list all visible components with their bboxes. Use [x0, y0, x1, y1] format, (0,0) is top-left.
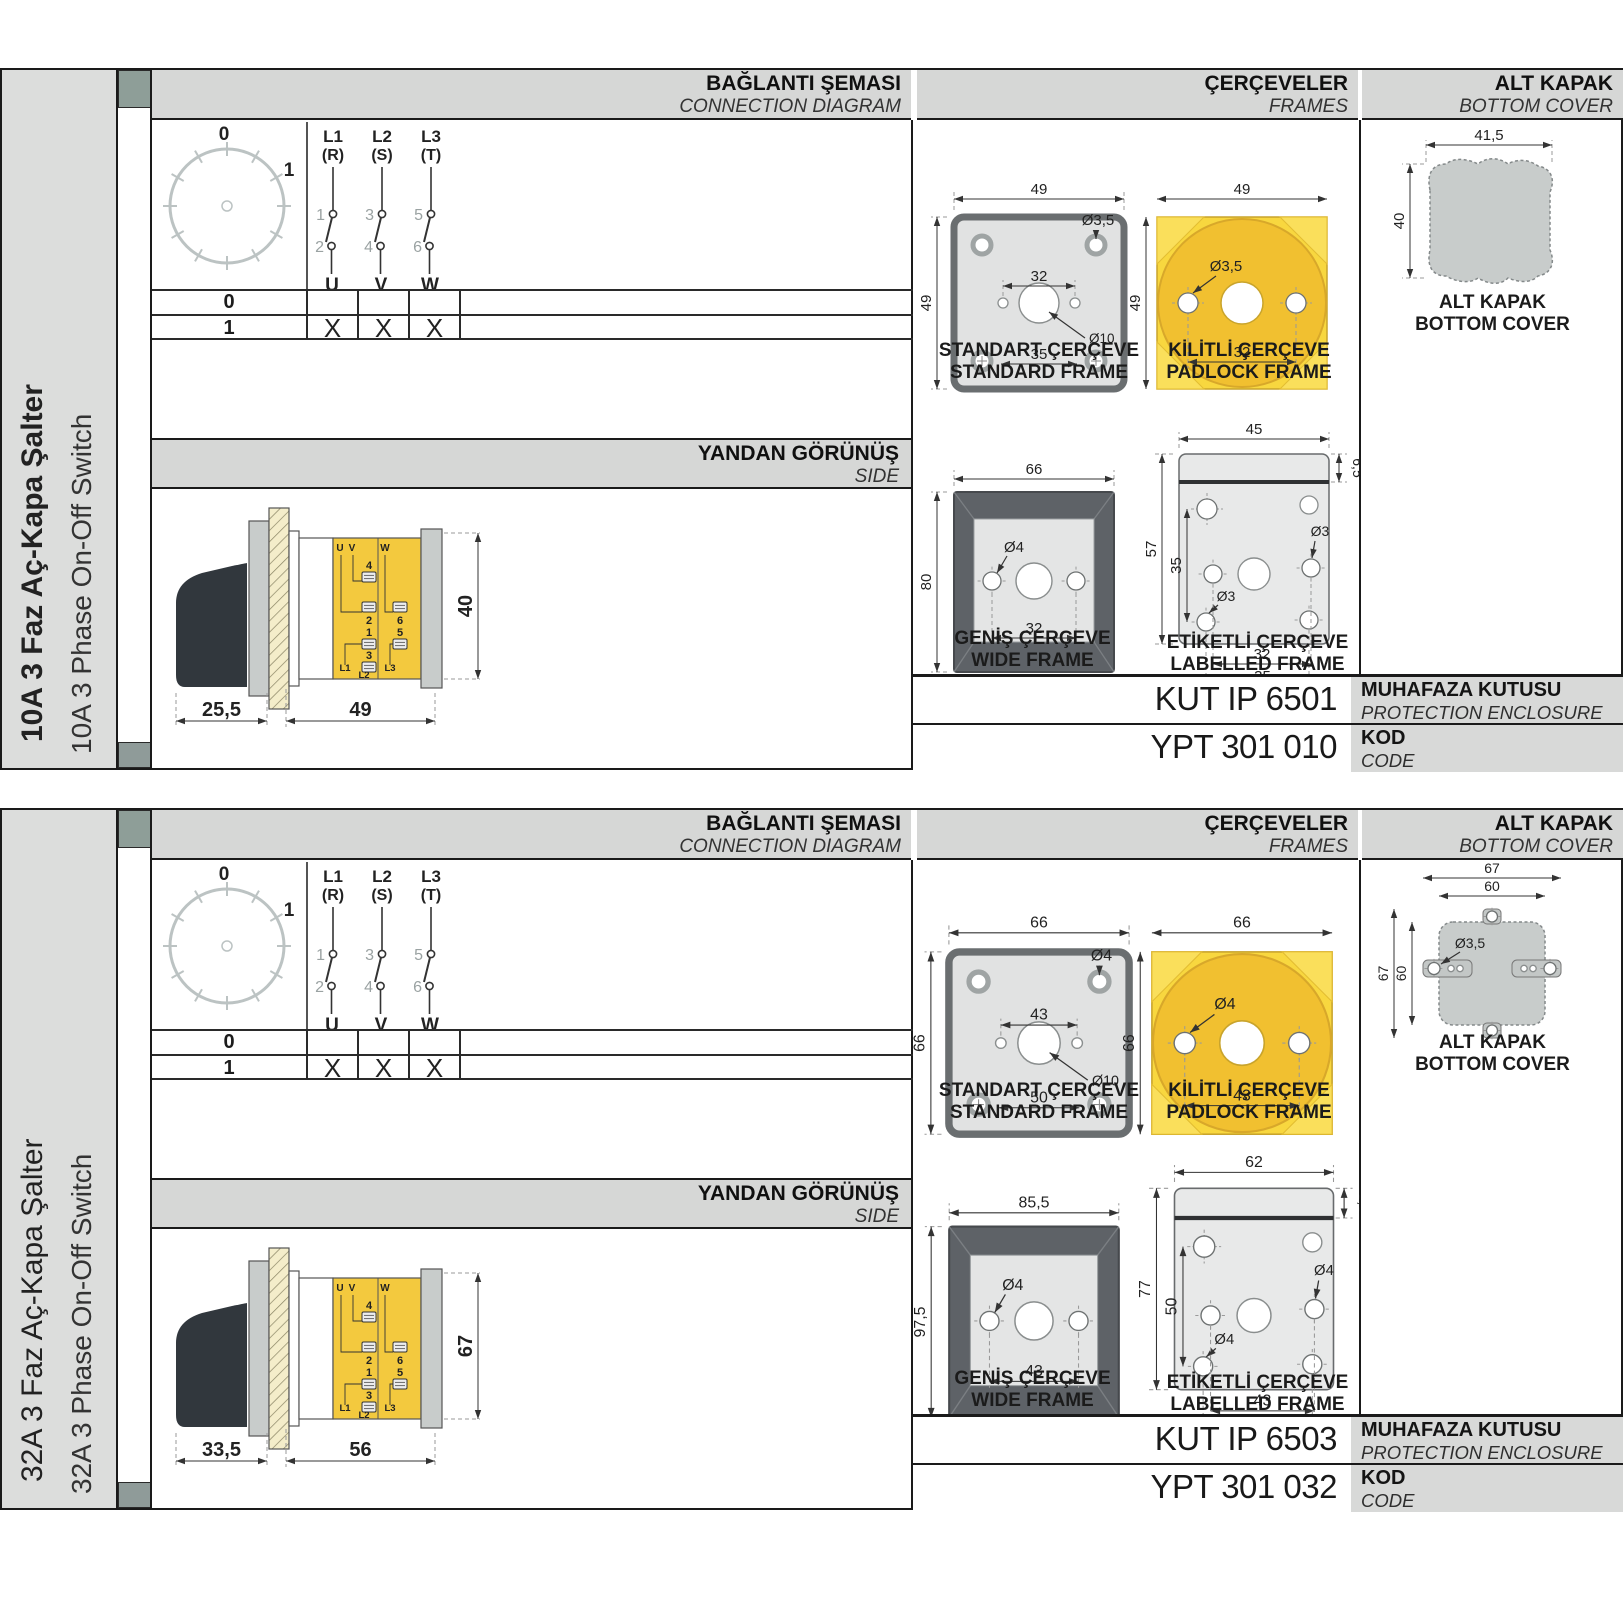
product-title-tr: 10A 3 Faz Aç-Kapa Şalter: [16, 384, 50, 742]
contact-mark: [359, 291, 410, 314]
dim-label: 32: [1031, 268, 1048, 285]
dim-label: 66: [1030, 915, 1048, 932]
terminal-number: 4: [366, 560, 373, 572]
phase-line-label: L1: [323, 867, 343, 886]
caption-wide-frame: GENİŞ ÇERÇEVE WIDE FRAME: [915, 628, 1150, 671]
contact-mark: X: [359, 1056, 410, 1080]
enclosure-row: KUT IP 6501 MUHAFAZA KUTUSU PROTECTION E…: [913, 677, 1623, 725]
caption-labelled-frame: ETİKETLİ ÇERÇEVE LABELLED FRAME: [1140, 632, 1375, 675]
dim-label: 97,5: [913, 1306, 929, 1337]
hole-dia-label: Ø4: [1214, 996, 1235, 1013]
phase-label: (R): [322, 887, 344, 904]
connection-diagram-drawing: 01L1(R)12UL2(S)34VL3(T)56W: [152, 862, 911, 1029]
dim-label: 67: [1484, 862, 1500, 876]
caption-bottom-cover: ALT KAPAK BOTTOM COVER: [1362, 292, 1623, 335]
registration-tab-top: [118, 70, 151, 108]
dim-label: 60: [1393, 966, 1409, 982]
order-code: YPT 301 032: [913, 1465, 1351, 1512]
table-row: 1 X X X: [152, 314, 913, 340]
contact-number: 4: [364, 239, 373, 256]
contact-mark: X: [410, 316, 461, 340]
terminal-number: 3: [366, 650, 372, 662]
header-frames: ÇERÇEVELER FRAMES: [917, 70, 1358, 120]
phase-label: (R): [322, 147, 344, 164]
phase-label: (S): [371, 887, 392, 904]
dim-label: 35: [1168, 557, 1185, 574]
dial-position-0: 0: [219, 864, 230, 885]
hole-dia-label: Ø3,5: [1082, 212, 1115, 229]
dim-label: 66: [1233, 915, 1251, 932]
rotary-dial: 01: [163, 864, 295, 1010]
caption-wide-frame: GENİŞ ÇERÇEVE WIDE FRAME: [915, 1368, 1150, 1411]
contact-number: 3: [365, 207, 374, 224]
codes-table: KUT IP 6503 MUHAFAZA KUTUSU PROTECTION E…: [913, 1414, 1623, 1512]
code-row: YPT 301 032 KOD CODE: [913, 1465, 1623, 1512]
enclosure-label: MUHAFAZA KUTUSU PROTECTION ENCLOSURE: [1351, 677, 1623, 723]
load-label: V: [375, 275, 388, 289]
side-view-drawing: UVW421365L1L2L333,55667: [152, 1229, 911, 1508]
phase-switch: L2(S)34V: [364, 867, 393, 1029]
header-connection-diagram: BAĞLANTI ŞEMASI CONNECTION DIAGRAM: [152, 810, 911, 860]
hole-dia-label: Ø3: [1311, 523, 1330, 539]
header-bottom-cover: ALT KAPAK BOTTOM COVER: [1362, 810, 1623, 860]
contact-mark: X: [359, 316, 410, 340]
dim-label: 56: [349, 1439, 371, 1461]
phase-line-label: L3: [421, 867, 441, 886]
dim-label: 85,5: [1019, 1195, 1050, 1212]
contact-number: 3: [365, 947, 374, 964]
terminal-label: V: [349, 543, 356, 554]
product-title-en: 32A 3 Phase On-Off Switch: [66, 1154, 98, 1494]
phase-label: (S): [371, 147, 392, 164]
dim-label: 60: [1484, 878, 1500, 894]
hole-dia-label: Ø4: [1214, 1332, 1234, 1348]
caption-standard-frame: STANDART ÇERÇEVE STANDARD FRAME: [924, 1080, 1154, 1123]
header-side-view: YANDAN GÖRÜNÜŞ SIDE: [152, 438, 911, 489]
contact-mark: [308, 291, 359, 314]
phase-label: (T): [421, 147, 441, 164]
load-label: U: [325, 1015, 339, 1029]
bottom-cover-shape: 41,540: [1391, 127, 1552, 283]
contact-number: 1: [316, 947, 325, 964]
row-position: 0: [152, 291, 308, 314]
side-view-drawing: UVW421365L1L2L325,54940: [152, 489, 911, 768]
hole-dia-label: Ø3,5: [1210, 258, 1243, 275]
load-label: V: [375, 1015, 388, 1029]
enclosure-code: KUT IP 6501: [913, 677, 1351, 723]
hole-dia-label: Ø4: [1002, 1277, 1023, 1294]
switching-table: 0 1 X X X: [152, 289, 913, 340]
phase-switch: L1(R)12U: [315, 127, 344, 289]
connection-diagram-drawing: 01L1(R)12UL2(S)34VL3(T)56W: [152, 122, 911, 289]
caption-standard-frame: STANDART ÇERÇEVE STANDARD FRAME: [924, 340, 1154, 383]
frames-drawings: Ø1049Ø3,5493235Ø3,5494932Ø4668032Ø3Ø3456…: [913, 122, 1360, 674]
dim-label: 33,5: [202, 1439, 241, 1461]
registration-tab-top: [118, 810, 151, 848]
terminal-label: V: [349, 1283, 356, 1294]
contact-number: 4: [364, 979, 373, 996]
catalog-page: { "page": {"background": "#ffffff"}, "co…: [0, 0, 1623, 1623]
connection-diagram: 01L1(R)12UL2(S)34VL3(T)56W: [163, 862, 441, 1029]
phase-switch: L1(R)12U: [315, 867, 344, 1029]
dim-label: 9,5: [1355, 1193, 1360, 1214]
product-block-10a: 10A 3 Faz Aç-Kapa Şalter 10A 3 Phase On-…: [0, 68, 1623, 770]
dim-label: 25,5: [202, 699, 241, 721]
phase-switch: L3(T)56W: [413, 127, 441, 289]
terminal-number: 6: [397, 615, 403, 627]
phase-line-label: L2: [372, 127, 392, 146]
caption-padlock-frame: KİLİTLİ ÇERÇEVE PADLOCK FRAME: [1134, 1080, 1364, 1123]
hole-dia-label: Ø4: [1314, 1263, 1334, 1279]
terminal-number: 2: [366, 1355, 372, 1367]
dial-position-0: 0: [219, 124, 230, 145]
phase-line-label: L1: [323, 127, 343, 146]
terminal-number: 1: [366, 627, 372, 639]
hole-dia-label: Ø3: [1217, 588, 1236, 604]
terminal-number: 2: [366, 615, 372, 627]
contact-mark: X: [410, 1056, 461, 1080]
switch-side-view: UVW421365L1L2L325,54940: [176, 508, 481, 727]
terminal-label: W: [380, 543, 390, 554]
contact-number: 5: [414, 207, 423, 224]
dim-label: 49: [1234, 181, 1251, 198]
header-side-view: YANDAN GÖRÜNÜŞ SIDE: [152, 1178, 911, 1229]
contact-number: 2: [315, 979, 324, 996]
contact-number: 2: [315, 239, 324, 256]
registration-tab-bottom: [118, 1482, 151, 1508]
header-bottom-cover: ALT KAPAK BOTTOM COVER: [1362, 70, 1623, 120]
caption-bottom-cover: ALT KAPAK BOTTOM COVER: [1362, 1032, 1623, 1075]
hole-dia-label: Ø4: [1091, 947, 1112, 964]
load-label: W: [421, 275, 439, 289]
registration-tab-bottom: [118, 742, 151, 768]
dim-label: 66: [1026, 461, 1043, 478]
caption-padlock-frame: KİLİTLİ ÇERÇEVE PADLOCK FRAME: [1134, 340, 1364, 383]
dial-position-1: 1: [284, 900, 295, 921]
dim-label: 41,5: [1474, 127, 1503, 144]
dim-label: 49: [349, 699, 371, 721]
load-label: U: [325, 275, 339, 289]
terminal-number: 5: [397, 627, 403, 639]
dim-label: 40: [455, 595, 477, 617]
hole-dia-label: Ø3,5: [1455, 935, 1486, 951]
dim-label: 45: [1246, 421, 1263, 438]
contact-mark: X: [308, 1056, 359, 1080]
enclosure-row: KUT IP 6503 MUHAFAZA KUTUSU PROTECTION E…: [913, 1417, 1623, 1465]
dim-label: 80: [918, 574, 935, 591]
contact-mark: [359, 1031, 410, 1054]
dim-label: 57: [1143, 541, 1160, 558]
dim-label: 6,5: [1350, 458, 1360, 478]
table-row: 0: [152, 289, 913, 314]
header-frames: ÇERÇEVELER FRAMES: [917, 810, 1358, 860]
terminal-label: W: [380, 1283, 390, 1294]
terminal-label: L2: [358, 1410, 369, 1421]
row-position: 1: [152, 1056, 308, 1080]
contact-number: 1: [316, 207, 325, 224]
dim-label: 50: [1164, 1297, 1181, 1315]
dial-position-1: 1: [284, 160, 295, 181]
dim-label: 49: [918, 295, 935, 312]
terminal-number: 6: [397, 1355, 403, 1367]
contact-mark: [308, 1031, 359, 1054]
code-label: KOD CODE: [1351, 1465, 1623, 1512]
product-sidebar: 10A 3 Faz Aç-Kapa Şalter 10A 3 Phase On-…: [2, 70, 118, 768]
dim-label: 49: [1031, 181, 1048, 198]
contact-number: 6: [413, 979, 422, 996]
contact-mark: [410, 291, 461, 314]
enclosure-code: KUT IP 6503: [913, 1417, 1351, 1463]
table-row: 1 X X X: [152, 1054, 913, 1080]
header-connection-diagram: BAĞLANTI ŞEMASI CONNECTION DIAGRAM: [152, 70, 911, 120]
dim-label: 66: [913, 1034, 929, 1052]
dim-label: 43: [1030, 1007, 1048, 1024]
contact-number: 5: [414, 947, 423, 964]
order-code: YPT 301 010: [913, 725, 1351, 772]
frames-drawings: Ø1066Ø4664350Ø4666643Ø485,597,543Ø4Ø4629…: [913, 862, 1360, 1414]
terminal-label: L2: [358, 670, 369, 681]
code-row: YPT 301 010 KOD CODE: [913, 725, 1623, 772]
phase-switch: L3(T)56W: [413, 867, 441, 1029]
product-sidebar: 32A 3 Faz Aç-Kapa Şalter 32A 3 Phase On-…: [2, 810, 118, 1508]
switch-side-view: UVW421365L1L2L333,55667: [176, 1248, 481, 1467]
dim-label: 67: [455, 1335, 477, 1357]
enclosure-label: MUHAFAZA KUTUSU PROTECTION ENCLOSURE: [1351, 1417, 1623, 1463]
contact-mark: [410, 1031, 461, 1054]
dim-label: 49: [1127, 295, 1144, 312]
terminal-number: 3: [366, 1390, 372, 1402]
rotary-dial: 01: [163, 124, 295, 270]
dim-label: 77: [1137, 1280, 1154, 1298]
switching-table: 0 1 X X X: [152, 1029, 913, 1080]
terminal-label: U: [336, 543, 343, 554]
contact-mark: X: [308, 316, 359, 340]
codes-table: KUT IP 6501 MUHAFAZA KUTUSU PROTECTION E…: [913, 674, 1623, 772]
load-label: W: [421, 1015, 439, 1029]
terminal-label: U: [336, 1283, 343, 1294]
table-row: 0: [152, 1029, 913, 1054]
caption-labelled-frame: ETİKETLİ ÇERÇEVE LABELLED FRAME: [1140, 1372, 1375, 1415]
product-title-tr: 32A 3 Faz Aç-Kapa Şalter: [16, 1138, 50, 1482]
dim-label: 62: [1245, 1154, 1263, 1171]
dim-label: 66: [1121, 1034, 1138, 1052]
product-block-32a: 32A 3 Faz Aç-Kapa Şalter 32A 3 Phase On-…: [0, 808, 1623, 1510]
product-title-en: 10A 3 Phase On-Off Switch: [66, 414, 98, 754]
code-label: KOD CODE: [1351, 725, 1623, 772]
phase-line-label: L3: [421, 127, 441, 146]
phase-label: (T): [421, 887, 441, 904]
terminal-number: 4: [366, 1300, 373, 1312]
hole-dia-label: Ø4: [1004, 539, 1024, 556]
bottom-cover-shape: 67606760Ø3,5: [1375, 862, 1561, 1039]
phase-line-label: L2: [372, 867, 392, 886]
terminal-number: 1: [366, 1367, 372, 1379]
row-position: 0: [152, 1031, 308, 1054]
row-position: 1: [152, 316, 308, 340]
connection-diagram: 01L1(R)12UL2(S)34VL3(T)56W: [163, 122, 441, 289]
terminal-number: 5: [397, 1367, 403, 1379]
phase-switch: L2(S)34V: [364, 127, 393, 289]
dim-label: 40: [1391, 213, 1408, 230]
dim-label: 67: [1375, 966, 1391, 982]
contact-number: 6: [413, 239, 422, 256]
